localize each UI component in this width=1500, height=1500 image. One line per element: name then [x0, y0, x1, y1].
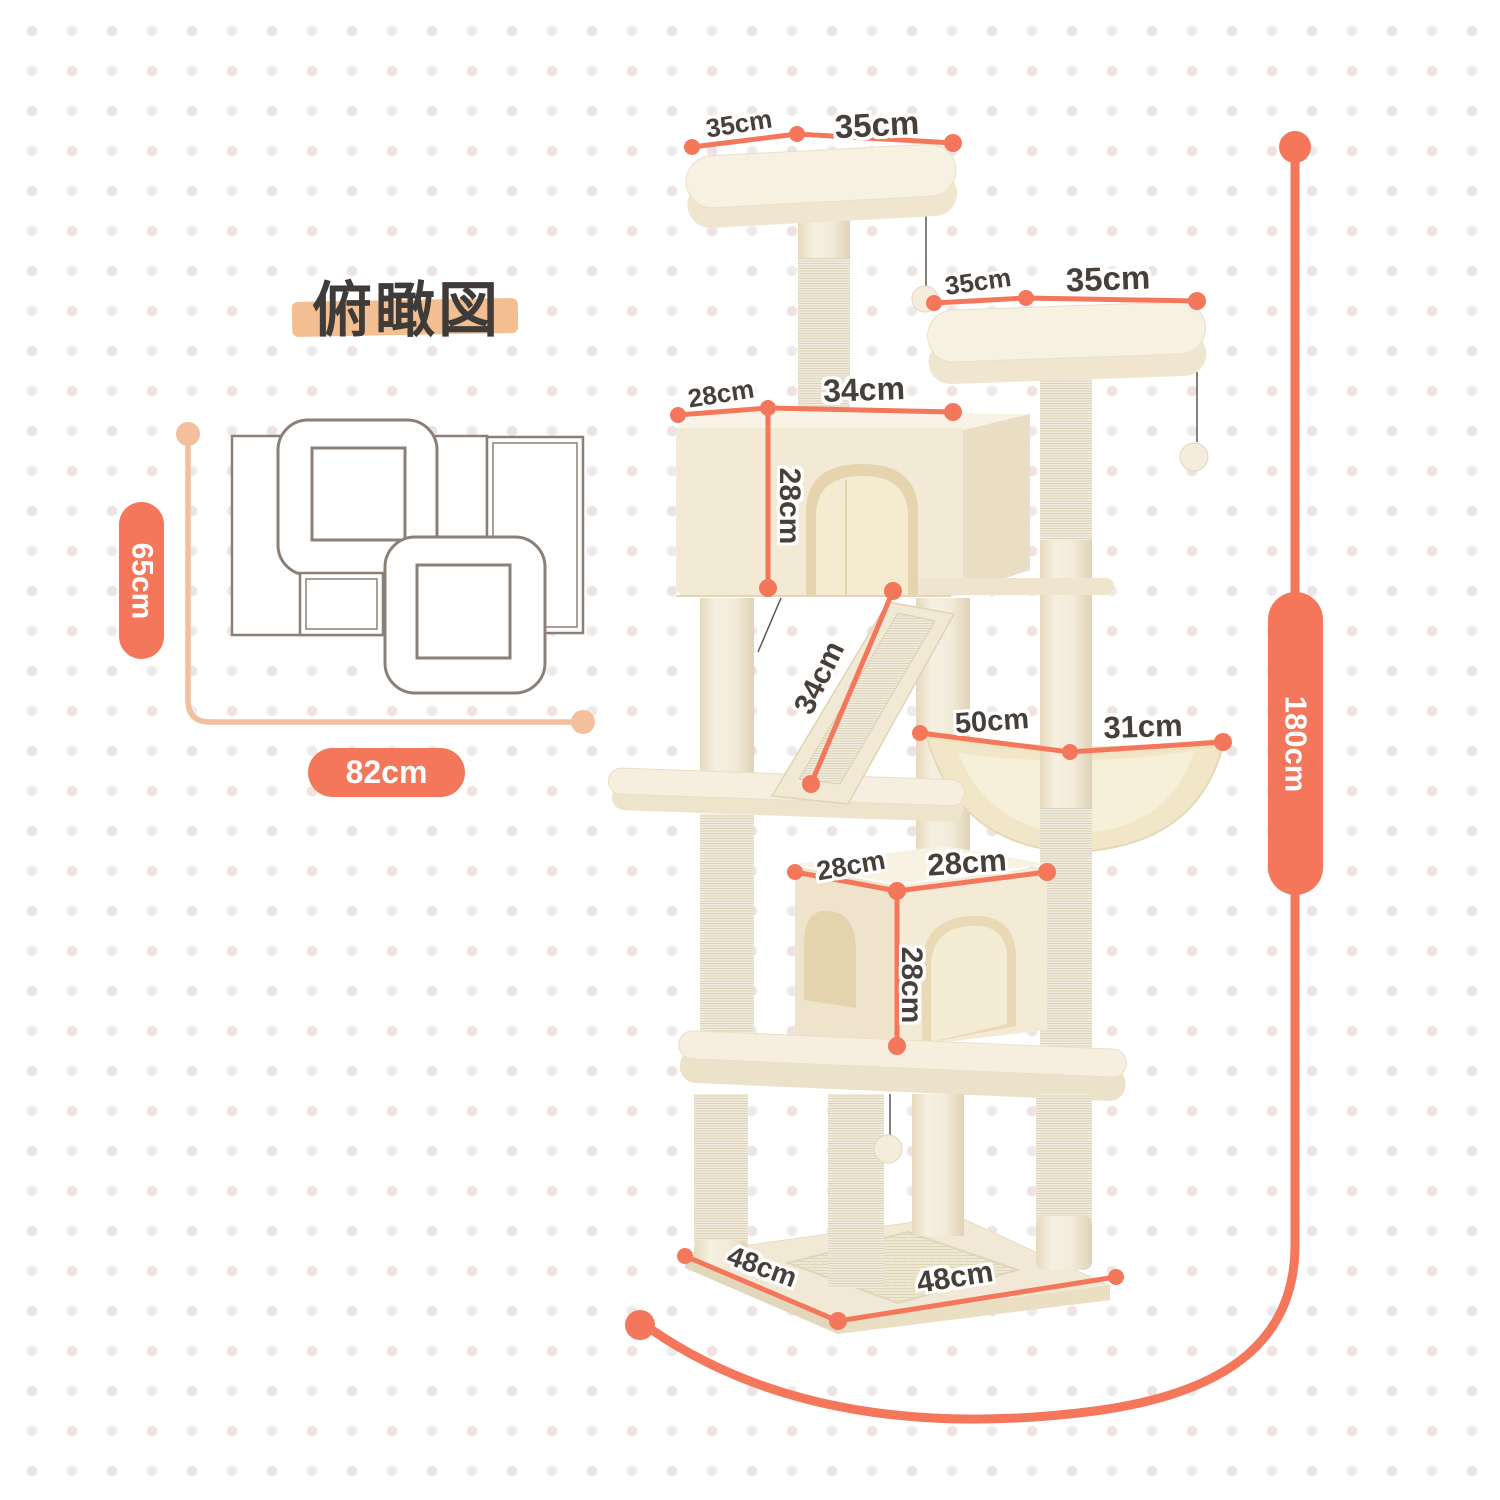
dim-dot	[912, 725, 928, 741]
lower-condo-side-arch	[804, 911, 856, 1008]
overhead-lower-bed-inner	[417, 565, 510, 658]
lower-post-center	[912, 1094, 964, 1236]
condo-ledge	[918, 578, 1114, 595]
dim-dot	[888, 1037, 906, 1055]
hammock-width-label: 50cm	[954, 703, 1030, 741]
height-dot-bottom	[625, 1310, 655, 1340]
dim-dot	[760, 400, 776, 416]
dim-dot	[926, 295, 942, 311]
upper-condo-arch-interior	[816, 476, 908, 596]
dimension-infographic: 俯瞰図 65cm 82cm 180cm 35cm 35cm 35cm 35cm …	[0, 0, 1500, 1500]
dim-dot	[1188, 292, 1206, 310]
overhead-dimension-dot-top	[176, 422, 200, 446]
pompom-ball-3	[874, 1135, 902, 1163]
tree-height-label: 180cm	[1278, 695, 1314, 792]
page-title: 俯瞰図	[312, 262, 501, 349]
left-post-under-condo	[700, 598, 754, 780]
dim-dot	[944, 403, 962, 421]
dim-dot	[684, 139, 700, 155]
overhead-width-pill: 82cm	[308, 748, 465, 797]
toy-string	[758, 598, 781, 652]
dim-dot	[829, 1312, 847, 1330]
lower-post-right-cap	[1036, 1216, 1092, 1270]
overhead-top-bed-inner	[312, 448, 405, 540]
dim-dot	[1018, 290, 1034, 306]
dim-dot	[888, 882, 906, 900]
hammock-depth-label: 31cm	[1103, 708, 1184, 747]
post-under-mid-platform	[700, 814, 754, 1042]
dim-dot	[944, 134, 962, 152]
overhead-depth-label: 65cm	[125, 542, 159, 619]
top-platform-right-label: 35cm	[834, 104, 920, 146]
lower-post-left-sisal	[694, 1094, 748, 1244]
overhead-width-label: 82cm	[346, 754, 428, 791]
right-post-sisal-top	[1040, 375, 1092, 540]
upper-condo-height-label: 28cm	[772, 468, 806, 545]
lower-condo-height-label: 28cm	[894, 947, 928, 1024]
second-platform-cushion	[927, 301, 1207, 363]
dim-dot	[759, 579, 777, 597]
upper-condo-width-label: 34cm	[822, 370, 905, 410]
pompom-ball-2	[1180, 443, 1208, 471]
top-platform	[685, 143, 958, 229]
lower-post-right-sisal	[1036, 1094, 1092, 1220]
dim-dot	[787, 864, 803, 880]
right-post-over-hammock-sisal	[1040, 808, 1092, 868]
overhead-view-diagram	[232, 420, 583, 693]
right-post-over-hammock	[1040, 726, 1092, 808]
second-platform-right-label: 35cm	[1065, 259, 1151, 300]
dim-dot	[1214, 733, 1232, 751]
overhead-depth-pill: 65cm	[119, 502, 164, 659]
dim-dot	[1062, 744, 1078, 760]
dim-dot	[884, 582, 902, 600]
lower-post-front	[828, 1094, 884, 1288]
height-dot-top	[1279, 131, 1311, 163]
dim-dot	[1038, 863, 1056, 881]
dim-dot	[677, 1248, 693, 1264]
lower-condo-width-label: 28cm	[926, 842, 1008, 883]
upper-condo-side	[963, 414, 1030, 592]
overhead-small-panel-inner	[306, 579, 377, 629]
dim-dot	[802, 775, 820, 793]
tree-height-pill: 180cm	[1268, 592, 1323, 895]
dim-dot	[789, 126, 805, 142]
second-platform	[927, 301, 1207, 385]
dim-dot	[670, 407, 686, 423]
overhead-dimension-dot-right	[571, 710, 595, 734]
dim-dot	[1108, 1269, 1124, 1285]
lower-condo-front-arch-interior	[931, 926, 1007, 1042]
